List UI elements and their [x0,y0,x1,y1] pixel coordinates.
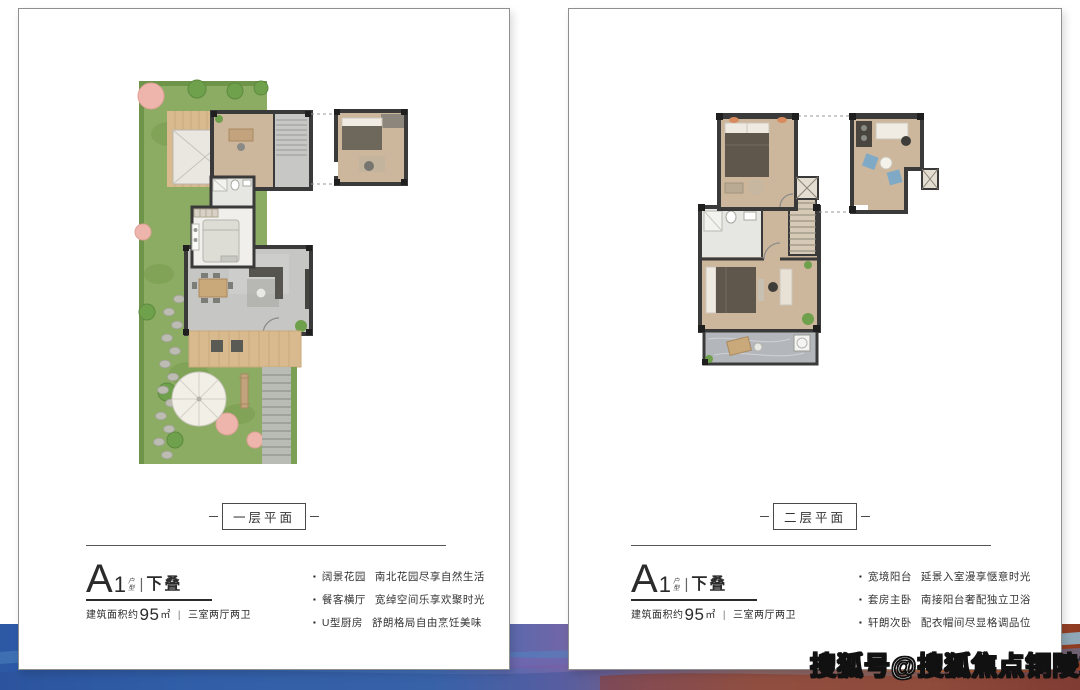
garden-umbrella [172,372,226,426]
room-layout: 三室两厅两卫 [188,606,251,621]
feature-desc: 南北花园尽享自然生活 [375,569,485,584]
area-value: 95 [685,608,705,621]
unit-type-stack: 户 型 [128,579,135,593]
bullet-square-icon: ▪ [313,619,316,627]
badge-tick-left [760,516,769,517]
garden-bench [239,374,250,408]
area-prefix: 建筑面积约 [631,606,684,621]
unit-title: A 1 户 型 | 下叠 [86,565,251,594]
bedroom-level1 [192,207,254,267]
feature-title: 餐客横厅 [322,592,366,607]
feature-title: 轩朗次卧 [868,615,912,630]
area-separator: | [178,610,181,621]
floor-plan-level2-image [694,109,944,369]
area-unit: ㎡ [160,606,171,621]
deck-bottom [189,331,301,367]
badge-tick-right [310,516,319,517]
unit-name: 下叠 [146,576,182,594]
area-info: 建筑面积约 95 ㎡ | 三室两厅两卫 [86,606,251,621]
feature-desc: 宽绰空间乐享欢聚时光 [375,592,485,607]
area-prefix: 建筑面积约 [86,606,139,621]
floorplan-page-level1: 一层平面 A 1 户 型 | 下叠 建筑面积约 95 ㎡ | 三室两厅两卫 ▪ … [18,8,510,670]
level-badge-label: 一层平面 [222,503,306,530]
badge-tick-right [861,516,870,517]
unit-type-stack: 户 型 [673,579,680,593]
area-unit: ㎡ [705,606,716,621]
feature-desc: 配衣帽间尽显格调品位 [921,615,1031,630]
detached-room-level1 [311,111,406,184]
bedroom-2-block [717,113,798,209]
area-info: 建筑面积约 95 ㎡ | 三室两厅两卫 [631,606,796,621]
unit-number: 1 [114,575,126,594]
feature-list: ▪ 阔景花园 南北花园尽享自然生活 ▪ 餐客横厅 宽绰空间乐享欢聚时光 ▪ U型… [313,569,485,638]
balcony [704,331,817,364]
feature-desc: 南接阳台奢配独立卫浴 [921,592,1031,607]
bullet-square-icon: ▪ [859,573,862,581]
bullet-square-icon: ▪ [313,596,316,604]
feature-desc: 舒朗格局自由烹饪美味 [372,615,482,630]
ac-platform [796,177,818,199]
bullet-square-icon: ▪ [859,596,862,604]
feature-list: ▪ 宽境阳台 延景入室漫享惬意时光 ▪ 套房主卧 南接阳台奢配独立卫浴 ▪ 轩朗… [859,569,1031,638]
unit-letter: A [631,565,658,594]
watermark-text: 搜狐号@搜狐焦点铜陵站 [810,646,1080,683]
badge-tick-left [209,516,218,517]
unit-info-block: A 1 户 型 | 下叠 建筑面积约 95 ㎡ | 三室两厅两卫 [86,565,251,621]
feature-item: ▪ 套房主卧 南接阳台奢配独立卫浴 [859,592,1031,607]
stone-path [262,367,297,464]
bullet-square-icon: ▪ [859,619,862,627]
area-separator: | [723,610,726,621]
bathroom-level1 [211,177,254,207]
unit-divider: | [684,576,688,594]
feature-item: ▪ 阔景花园 南北花园尽享自然生活 [313,569,485,584]
bullet-square-icon: ▪ [313,573,316,581]
feature-item: ▪ U型厨房 舒朗格局自由烹饪美味 [313,615,485,630]
feature-item: ▪ 宽境阳台 延景入室漫享惬意时光 [859,569,1031,584]
unit-number: 1 [659,575,671,594]
floorplan-page-level2: 二层平面 A 1 户 型 | 下叠 建筑面积约 95 ㎡ | 三室两厅两卫 ▪ … [568,8,1062,670]
feature-item: ▪ 轩朗次卧 配衣帽间尽显格调品位 [859,615,1031,630]
feature-title: U型厨房 [322,615,363,630]
room-layout: 三室两厅两卫 [733,606,796,621]
unit-title: A 1 户 型 | 下叠 [631,565,796,594]
unit-letter: A [86,565,113,594]
feature-title: 阔景花园 [322,569,366,584]
section-divider [631,545,991,546]
unit-info-block: A 1 户 型 | 下叠 建筑面积约 95 ㎡ | 三室两厅两卫 [631,565,796,621]
feature-desc: 延景入室漫享惬意时光 [921,569,1031,584]
feature-title: 宽境阳台 [868,569,912,584]
level-badge-label: 二层平面 [773,503,857,530]
level-badge-2: 二层平面 [760,503,870,530]
section-divider [86,545,446,546]
feature-title: 套房主卧 [868,592,912,607]
area-value: 95 [140,608,160,621]
unit-type-bottom: 型 [673,586,680,593]
unit-name: 下叠 [691,576,727,594]
level-badge-1: 一层平面 [209,503,319,530]
feature-item: ▪ 餐客横厅 宽绰空间乐享欢聚时光 [313,592,485,607]
floor-plan-level1-image [129,74,409,466]
unit-divider: | [139,576,143,594]
unit-type-bottom: 型 [128,586,135,593]
